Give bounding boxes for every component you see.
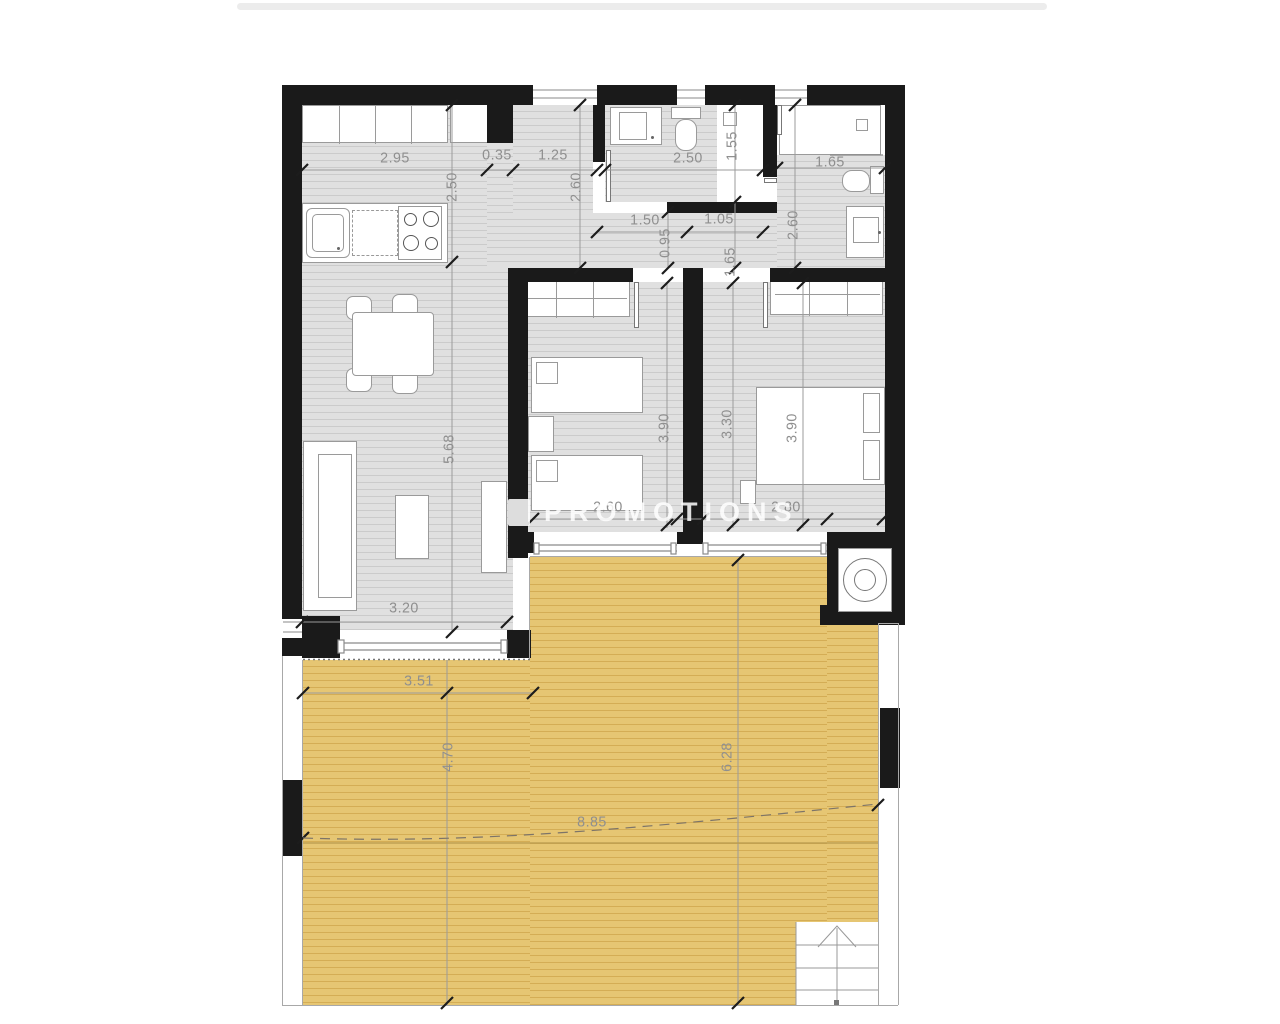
dimension-label: 0.95 [657,228,674,258]
watermark: PROMOTIONS [508,497,799,528]
pillow [863,440,880,480]
wall-top-c [705,85,775,105]
dimension-label: 3.51 [404,673,434,690]
dimension-label: 2.95 [380,150,410,167]
toilet-bowl [675,119,697,151]
cabinet-divider [339,106,340,144]
kitchen-hob [398,206,442,260]
pillar-terrace-left [283,780,303,856]
floor-plan-page: 2.950.351.252.501.651.501.052.502.601.55… [0,0,1280,1024]
bed-double [756,387,885,485]
kitchen-upper-cabinets [302,105,448,143]
burner [423,211,439,227]
dimension-label: 8.85 [577,814,607,831]
wardrobe-rail [523,298,627,299]
door-entry [777,105,782,135]
dimension-label: 1.25 [538,147,568,164]
kitchen-fridge [450,104,488,143]
dimension-label: 1.65 [815,154,845,171]
stairs-area [796,922,878,1005]
wall-kitchen-stub [487,85,513,143]
wall-bedrooms-top-a [513,268,633,282]
wall-window-separator [677,532,703,544]
dimension-label: 3.20 [389,600,419,617]
kitchen-sink [306,208,350,258]
coffee-table [395,495,429,559]
dimension-label: 2.60 [785,210,802,240]
door-bathroom [764,178,777,183]
door-wc [606,150,611,202]
door-bedroom-1 [634,282,639,328]
pillow [536,460,558,482]
dimension-label: 1.50 [630,212,660,229]
burner [425,237,438,250]
cabinet-divider [375,106,376,144]
page-top-divider [237,3,1047,10]
kitchen-dishwasher [352,210,398,256]
washbasin [853,217,879,243]
dimension-label: 2.60 [568,172,585,202]
entry-fixture [723,112,737,126]
dimension-label: 1.05 [704,211,734,228]
basin-tap [651,136,654,139]
cabinet-divider [411,106,412,144]
water-heater-drum-inner [854,569,876,591]
dimension-label: 3.90 [784,413,801,443]
toilet-cistern [671,107,701,119]
terrace-right [530,557,827,1005]
pillar-terrace-right [880,708,900,788]
wall-bed1-window-corner [508,532,534,553]
dining-table [352,312,434,376]
basin-tap [878,231,881,234]
bath-washbasin-cabinet [846,206,884,258]
wall-wc-left [593,105,605,162]
dimension-label: 4.70 [440,742,457,772]
dimension-label: 1.65 [722,247,739,277]
dimension-label: 6.28 [719,742,736,772]
bed-single-1 [531,357,643,413]
toilet-cistern [870,166,884,194]
sofa-seat [318,454,352,598]
nightstand [528,416,554,452]
door-bedroom-2 [763,282,768,328]
burner [404,213,417,226]
sofa [303,441,357,611]
sink-tap [337,247,340,250]
wall-entry-right [763,105,777,177]
wall-left-corner [302,616,340,658]
pillow [536,362,558,384]
terrace-left [303,660,530,1005]
dimension-label: 3.30 [719,409,736,439]
shower-drain [856,119,868,131]
wall-top-b [597,85,677,105]
pillow [863,393,880,433]
washbasin [619,112,647,140]
watermark-logo-icon [508,499,530,526]
dimension-label: 1.55 [724,131,741,161]
toilet-bowl [842,170,870,192]
burner [403,235,419,251]
dimension-label: 5.68 [441,434,458,464]
wall-living-bottom-right [507,630,531,658]
wall-left-low [282,638,302,656]
dimension-label: 3.90 [656,413,673,443]
dimension-label: 2.50 [444,172,461,202]
watermark-text: PROMOTIONS [544,497,799,528]
wall-left [282,85,302,619]
wardrobe-bedroom-1 [518,277,630,317]
wall-bedrooms-top-b [770,268,905,282]
wardrobe-rail [775,294,880,295]
shower-tray [779,105,881,155]
wc-washbasin-cabinet [610,107,662,145]
dimension-label: 0.35 [482,147,512,164]
tv-unit [481,481,507,573]
dimension-label: 2.50 [673,150,703,167]
